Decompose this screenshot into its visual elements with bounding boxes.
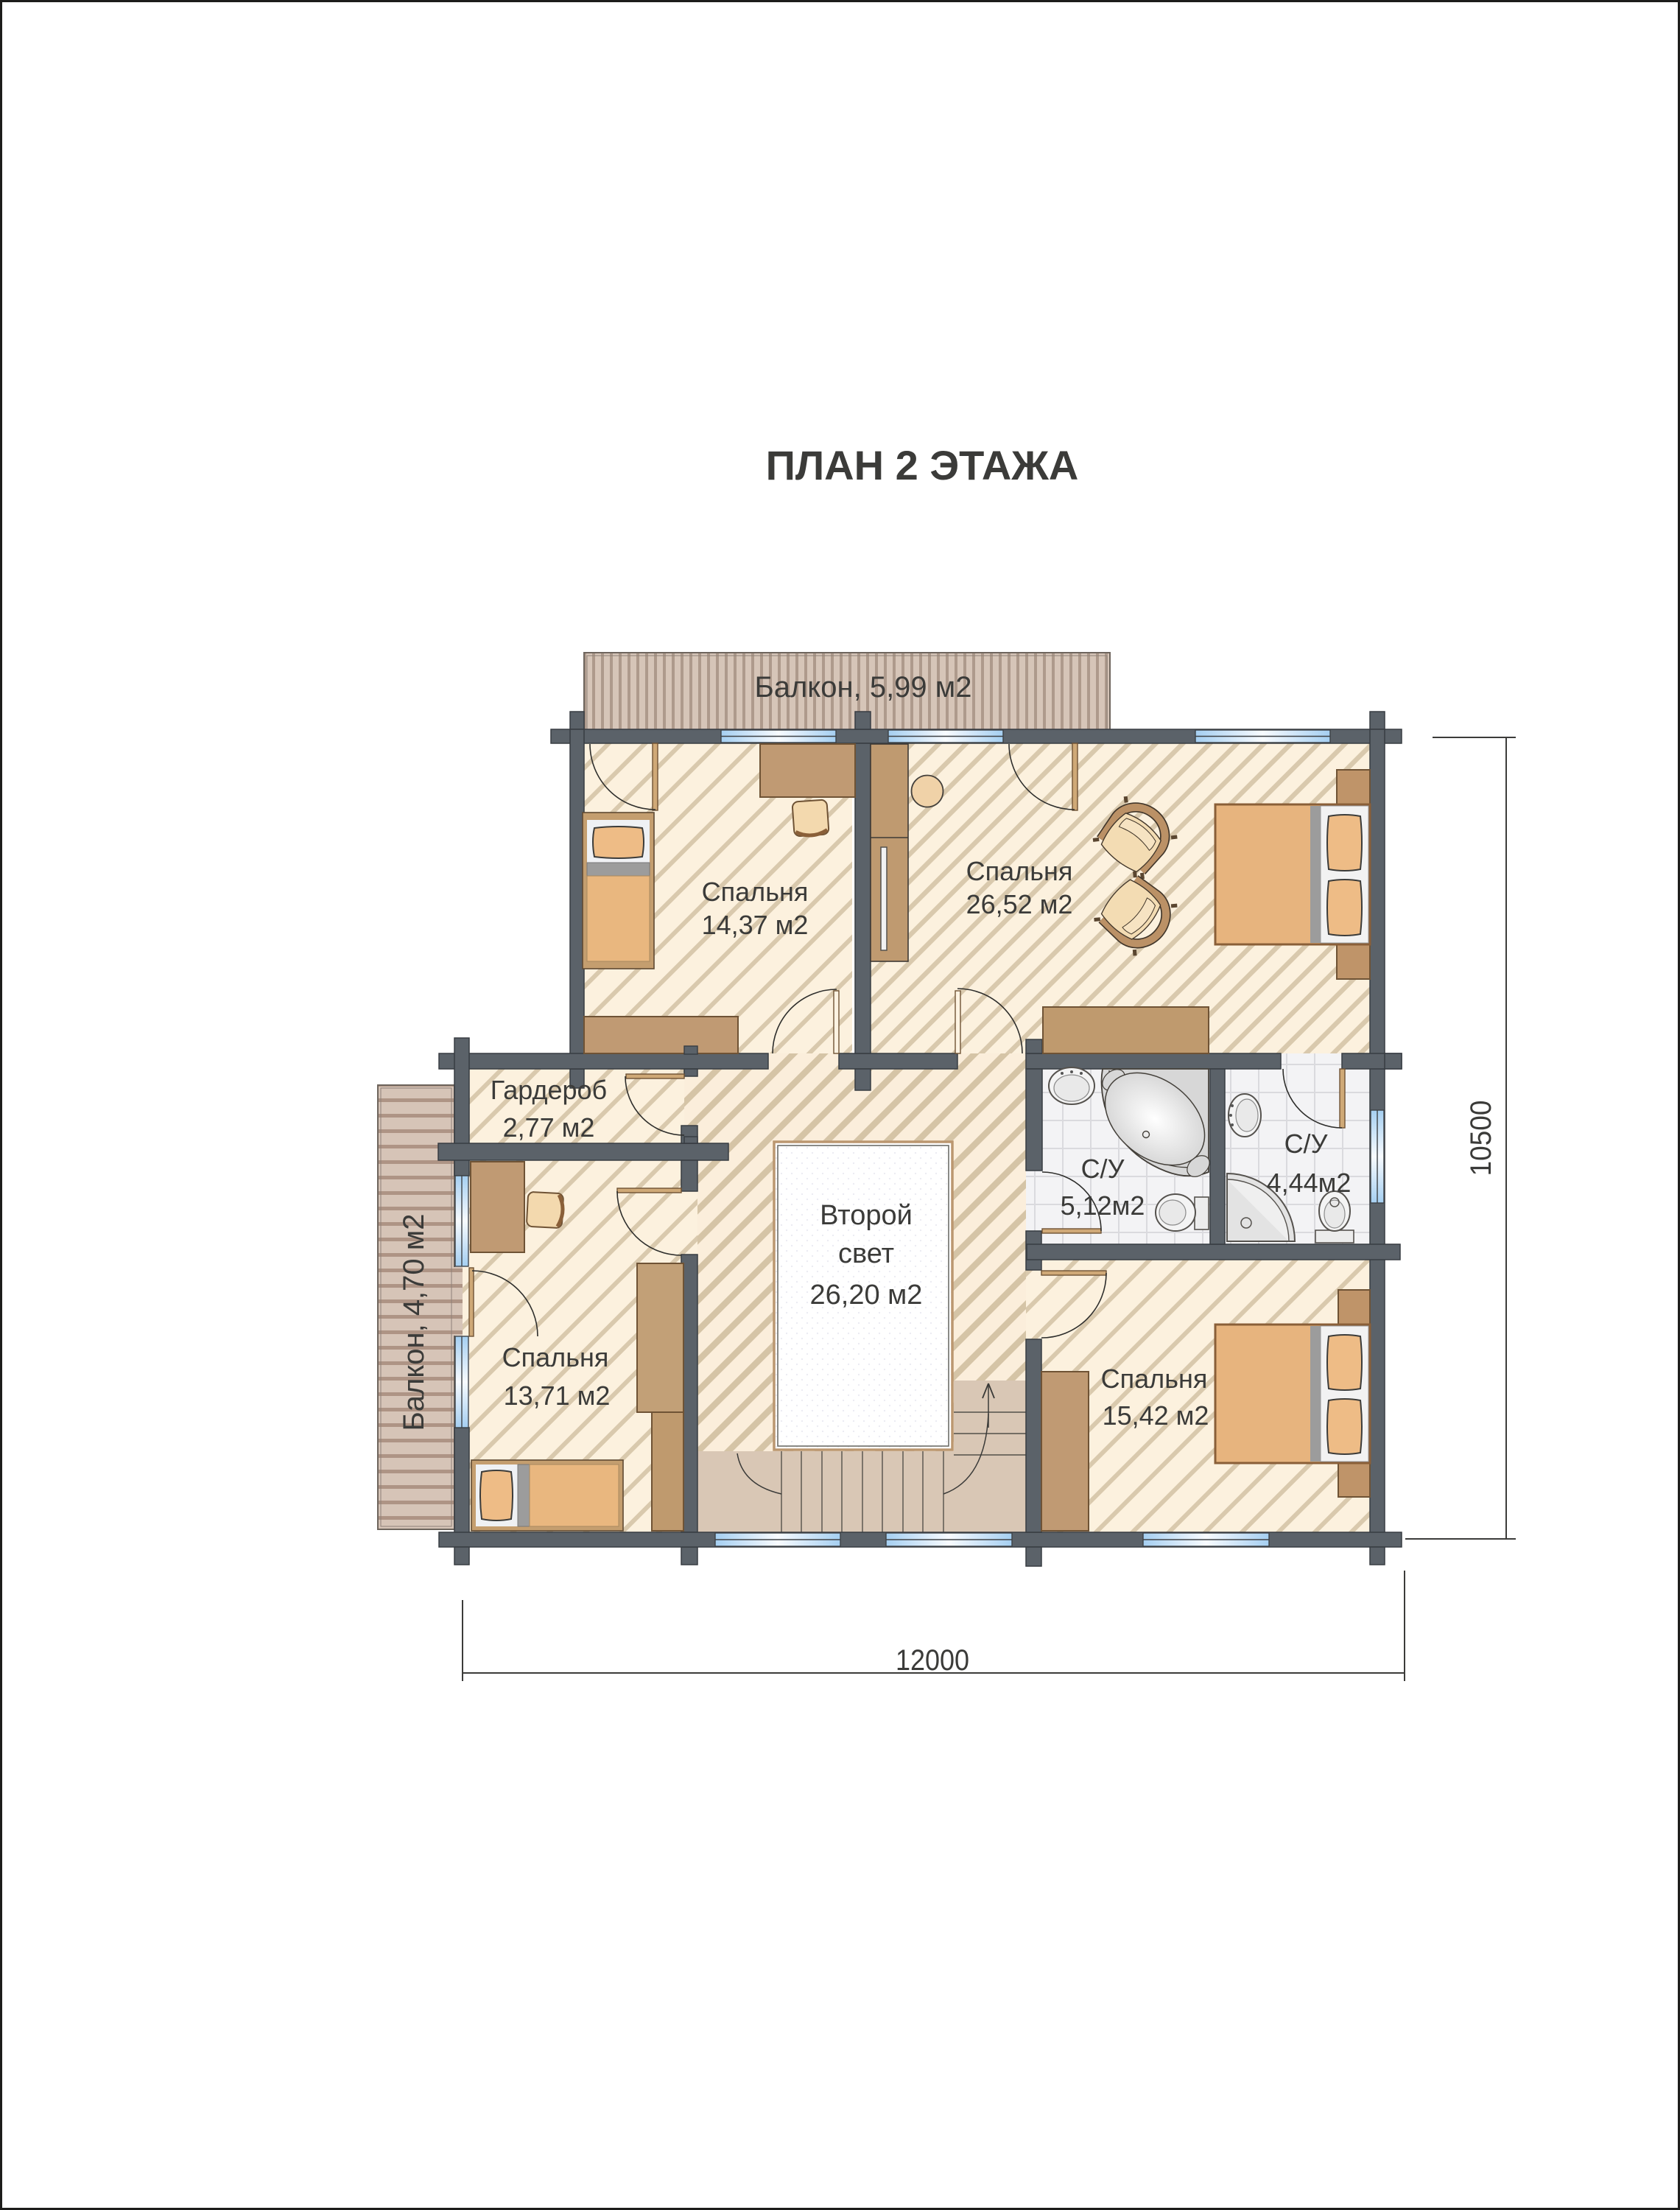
- svg-text:14,37 м2: 14,37 м2: [702, 910, 809, 940]
- svg-text:13,71 м2: 13,71 м2: [504, 1381, 611, 1411]
- svg-text:26,20 м2: 26,20 м2: [810, 1280, 923, 1311]
- svg-text:Спальня: Спальня: [1101, 1364, 1208, 1394]
- svg-text:26,52 м2: 26,52 м2: [966, 889, 1073, 919]
- svg-text:Балкон, 5,99 м2: Балкон, 5,99 м2: [754, 671, 971, 704]
- svg-text:10500: 10500: [1465, 1101, 1497, 1176]
- svg-text:Спальня: Спальня: [502, 1342, 609, 1372]
- svg-text:15,42 м2: 15,42 м2: [1103, 1400, 1209, 1431]
- svg-text:Балкон, 4,70 м2: Балкон, 4,70 м2: [398, 1213, 430, 1431]
- svg-text:4,44м2: 4,44м2: [1267, 1168, 1352, 1198]
- svg-text:ПЛАН 2 ЭТАЖА: ПЛАН 2 ЭТАЖА: [766, 442, 1079, 488]
- svg-text:Спальня: Спальня: [702, 877, 809, 907]
- svg-text:С/У: С/У: [1284, 1129, 1329, 1159]
- svg-text:5,12м2: 5,12м2: [1061, 1190, 1145, 1221]
- svg-text:Спальня: Спальня: [966, 856, 1073, 886]
- svg-text:12000: 12000: [896, 1644, 969, 1677]
- svg-text:2,77 м2: 2,77 м2: [503, 1112, 595, 1143]
- svg-text:свет: свет: [838, 1238, 894, 1269]
- svg-text:С/У: С/У: [1081, 1154, 1125, 1184]
- svg-text:Гардероб: Гардероб: [491, 1075, 607, 1105]
- svg-text:Второй: Второй: [820, 1200, 913, 1231]
